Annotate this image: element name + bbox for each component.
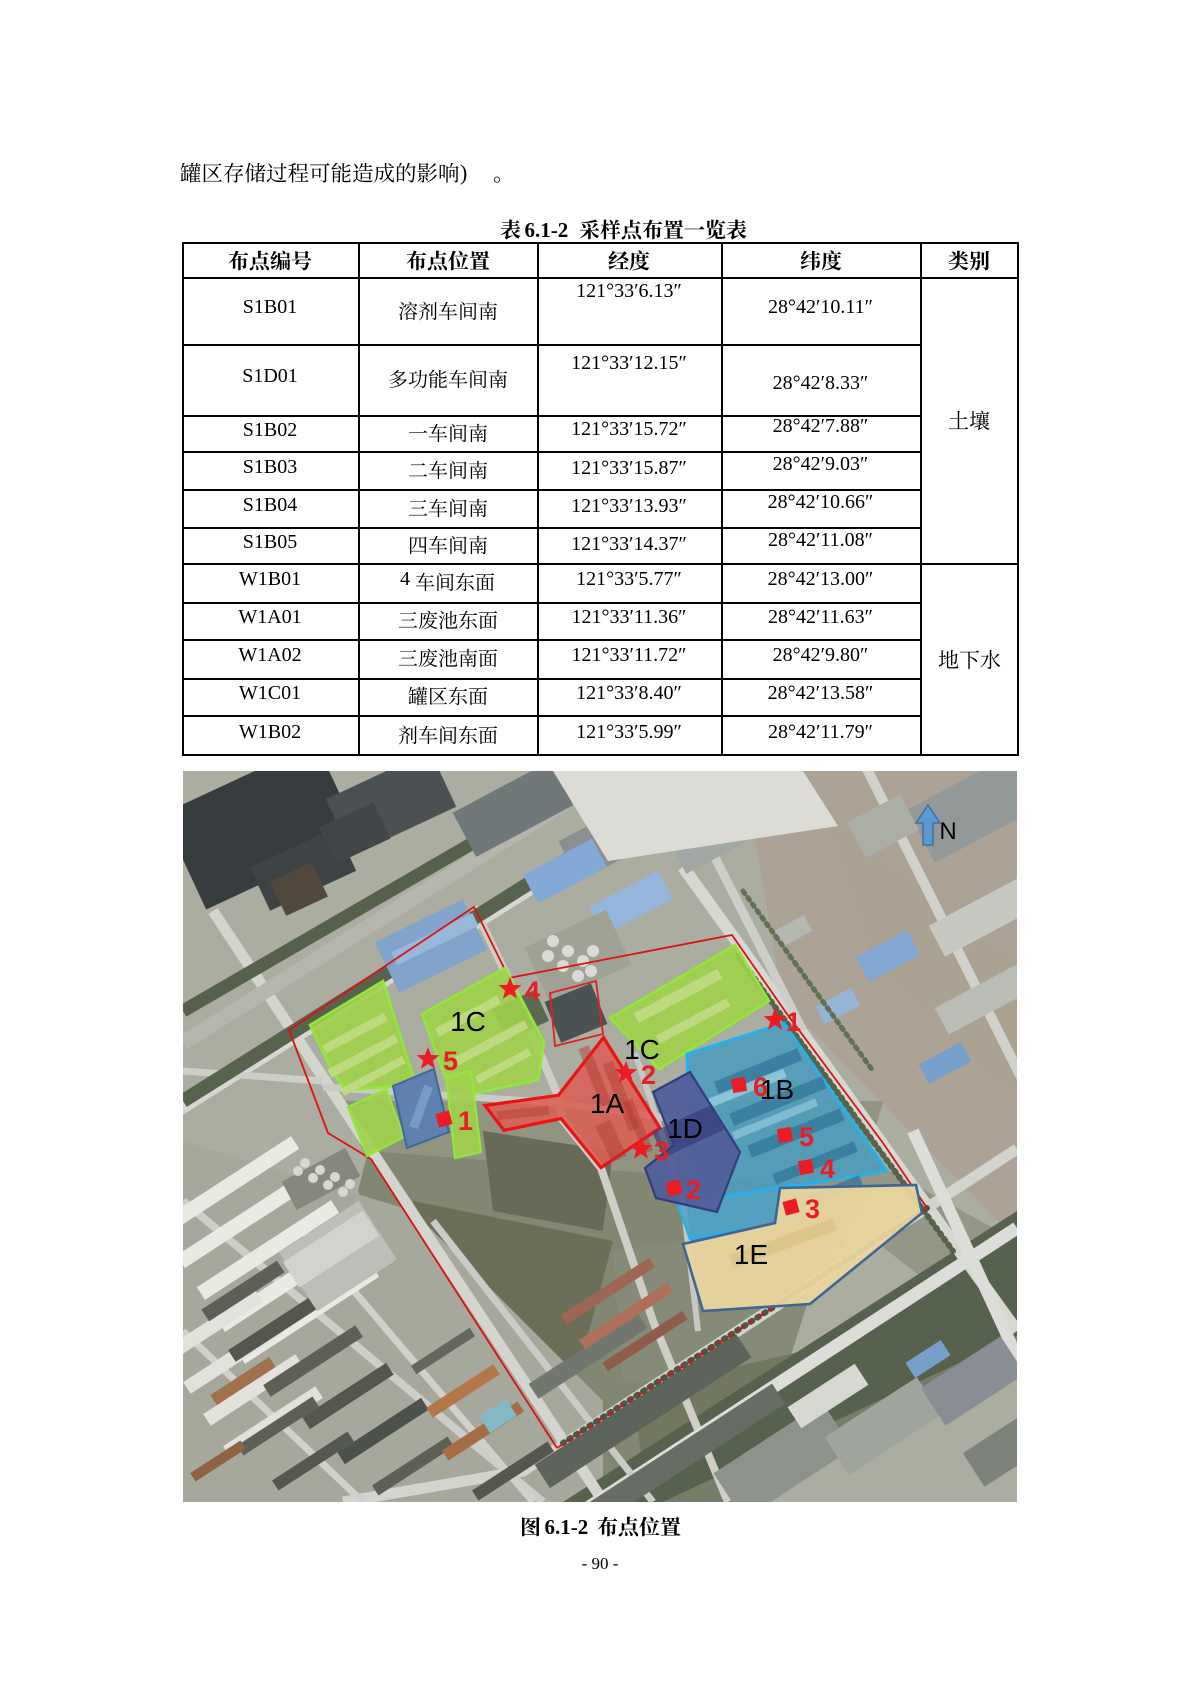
svg-text:1E: 1E bbox=[734, 1239, 768, 1270]
svg-text:5: 5 bbox=[799, 1122, 814, 1152]
svg-text:4: 4 bbox=[820, 1154, 835, 1184]
svg-text:1D: 1D bbox=[667, 1113, 703, 1144]
svg-text:4: 4 bbox=[525, 976, 540, 1006]
svg-text:3: 3 bbox=[805, 1194, 820, 1224]
svg-text:1: 1 bbox=[786, 1007, 801, 1037]
svg-text:1C: 1C bbox=[624, 1034, 660, 1065]
svg-text:N: N bbox=[939, 818, 956, 845]
svg-text:1B: 1B bbox=[760, 1074, 794, 1105]
svg-text:5: 5 bbox=[443, 1046, 458, 1076]
svg-text:1: 1 bbox=[458, 1106, 473, 1136]
svg-text:1C: 1C bbox=[450, 1006, 486, 1037]
svg-text:2: 2 bbox=[686, 1175, 701, 1205]
svg-text:1A: 1A bbox=[590, 1088, 625, 1119]
